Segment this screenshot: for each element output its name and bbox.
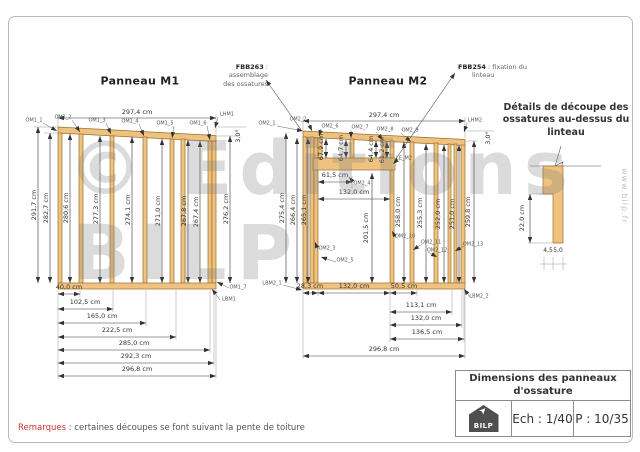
m2-bottom-row1-dim-1: 132,0 cm (339, 283, 370, 290)
m1-top-width-dim: 297,4 cm (122, 109, 153, 116)
callout-fbb254: FBB254 : fixation du linteau (458, 63, 538, 80)
title-block-scale: Ech : 1/40 (512, 401, 574, 436)
title-block-line1: Dimensions des panneaux (469, 373, 616, 384)
m2-stud-label-om2-8: OM2_8 (376, 128, 393, 133)
m2-stud-label-om2-9: OM2_9 (401, 129, 418, 134)
m2-bottom-row1-dim-2: 50,5 cm (391, 283, 417, 290)
fbb254-text-1: : fixation du (488, 63, 527, 71)
m1-stud-label-om1-7: OM1_7 (229, 286, 246, 291)
m1-stud-label-om1-1: OM1_1 (25, 119, 42, 124)
m1-bottom-plate-label: LBM1 (222, 298, 236, 303)
remark-line: Remarques : certaines découpes se font s… (18, 423, 305, 433)
m2-right-height-dim-0: 258,0 cm (395, 197, 402, 228)
m2-bottom-plate-right-label: LBM2_2 (469, 295, 488, 300)
m2-bottom-plate-left-label: LBM2_1 (262, 282, 281, 287)
title-block: Dimensions des panneaux d'ossature ➤ BIL… (455, 370, 631, 437)
m1-bottom-dim-0: 40,0 cm (56, 284, 82, 291)
m2-stud-label-om2-2: OM2_2 (289, 118, 306, 123)
m2-stud-label-om2-10: OM2_10 (395, 235, 415, 240)
m2-left-height-dim-2: 265,1 cm (301, 195, 308, 226)
fbb263-code: FBB263 (236, 63, 264, 71)
fbb254-text-2: linteau (458, 71, 494, 79)
m1-height-dim-4: 274,1 cm (125, 195, 132, 226)
m2-title: Panneau M2 (349, 76, 428, 87)
m2-bottom-plate (303, 283, 465, 289)
m2-sill-label: OM2_4 (353, 182, 370, 187)
m1-bottom-dim-2: 165,0 cm (87, 313, 118, 320)
m2-cripple-dim-2: 64,4 cm (368, 136, 375, 162)
m2-stud-label-om2-12: OM2_12 (427, 249, 447, 254)
m2-bottom-dim-3: 296,8 cm (369, 346, 400, 353)
m2-lintel-offset-dim: 61,5 cm (322, 172, 348, 179)
m2-bottom-dim-1: 132,0 cm (411, 315, 442, 322)
m1-height-dim-7: 267,4 cm (193, 197, 200, 228)
m2-stud-label-om2-5: OM2_5 (336, 259, 353, 264)
m1-height-dim-5: 271,0 cm (155, 196, 162, 227)
m2-top-width-dim: 297,4 cm (369, 112, 400, 119)
panel-m1-leaders (43, 117, 229, 300)
m2-stud-label-om2-13: OM2_13 (463, 243, 483, 248)
title-block-logo-cell: ➤ BILP (456, 401, 512, 436)
detail-title: Détails de découpe des ossatures au-dess… (500, 102, 632, 139)
m2-bottom-dim-0: 113,1 cm (406, 302, 437, 309)
callout-fbb263: FBB263 : assemblage des ossatures (196, 63, 268, 88)
m2-top-plate-label: LHM2 (468, 119, 482, 124)
detail-width-dim-left: 4,5 (543, 248, 553, 254)
m2-right-height-dim-4: 259,8 cm (465, 197, 472, 228)
logo-arrow-icon: ➤ (478, 406, 490, 418)
cut-detail-drawing (528, 146, 601, 270)
m1-stud-label-om1-6: OM1_6 (189, 122, 206, 127)
logo-text: BILP (469, 422, 499, 430)
m1-bottom-dim-1: 102,5 cm (70, 299, 101, 306)
m1-stud-label-om1-4: OM1_4 (121, 120, 138, 125)
m1-height-dim-0: 291,7 cm (31, 190, 38, 221)
m2-opening-height-dim: 201,5 cm (363, 213, 370, 244)
m1-bottom-dim-5: 292,3 cm (121, 353, 152, 360)
m2-stud-label-om2-3: OM2_3 (318, 247, 335, 252)
m1-height-dim-1: 282,7 cm (43, 193, 50, 224)
title-block-page: P : 10/35 (574, 401, 630, 436)
m2-bottom-dim-2: 136,5 cm (412, 329, 443, 336)
m1-title: Panneau M1 (101, 76, 180, 87)
m1-height-dim-6: 267,8 cm (181, 196, 188, 227)
m1-stud-label-om1-5: OM1_5 (156, 122, 173, 127)
title-block-line2: d'ossature (513, 386, 572, 397)
m1-height-dim-2: 280,6 cm (63, 193, 70, 224)
fbb263-text-2: des ossatures (223, 80, 268, 88)
m1-bottom-dim-6: 296,8 cm (122, 366, 153, 373)
panel-m1-dimensions (38, 118, 230, 376)
m1-bottom-dim-4: 285,0 cm (119, 340, 150, 347)
m2-left-height-dim-1: 266,4 cm (290, 195, 297, 226)
detail-height-dim: 22,0 cm (519, 205, 526, 231)
m2-stud-label-om2-6: OM2_6 (321, 125, 338, 130)
m2-bottom-row1-dim-0: 28,3 cm (297, 283, 323, 290)
title-block-row: ➤ BILP Ech : 1/40 P : 10/35 (456, 401, 630, 436)
m2-opening-width-dim: 132,0 cm (339, 189, 370, 196)
remark-text: : certaines découpes se font suivant la … (69, 423, 305, 433)
m1-roof-angle: 3,0° (235, 129, 242, 143)
fbb254-code: FBB254 (458, 63, 486, 71)
remark-label: Remarques (18, 423, 66, 433)
detail-width-dim-right: 5,0 (553, 248, 563, 254)
m2-stud-label-om2-7: OM2_7 (351, 126, 368, 131)
title-block-header: Dimensions des panneaux d'ossature (456, 371, 630, 401)
m1-height-dim-3: 277,3 cm (93, 194, 100, 225)
m2-left-height-dim-0: 275,4 cm (279, 193, 286, 224)
m2-roof-angle: 3,0° (485, 131, 492, 145)
m1-top-plate-label: LHM1 (220, 113, 234, 118)
m2-stud-label-om2-11: OM2_11 (421, 241, 441, 246)
m2-cripple-dim-0: 67,9 cm (318, 134, 325, 160)
m2-right-height-dim-2: 252,0 cm (435, 199, 442, 230)
m1-bottom-dim-3: 222,5 cm (102, 327, 133, 334)
m1-stud-label-om1-2: OM1_2 (54, 116, 71, 121)
m2-cripple-dim-3: 61,2 cm (379, 137, 386, 163)
m2-right-height-dim-1: 255,3 cm (417, 198, 424, 229)
m2-right-height-dim-3: 251,0 cm (449, 199, 456, 230)
m1-height-dim-8: 276,2 cm (223, 194, 230, 225)
m2-stud-label-om2-1: OM2_1 (258, 122, 275, 127)
m1-stud-label-om1-3: OM1_3 (88, 119, 105, 124)
m2-lintel-label: LE_M2 (396, 157, 412, 162)
bilp-logo: ➤ BILP (469, 405, 499, 432)
m2-cripple-dim-1: 64,7 cm (338, 135, 345, 161)
